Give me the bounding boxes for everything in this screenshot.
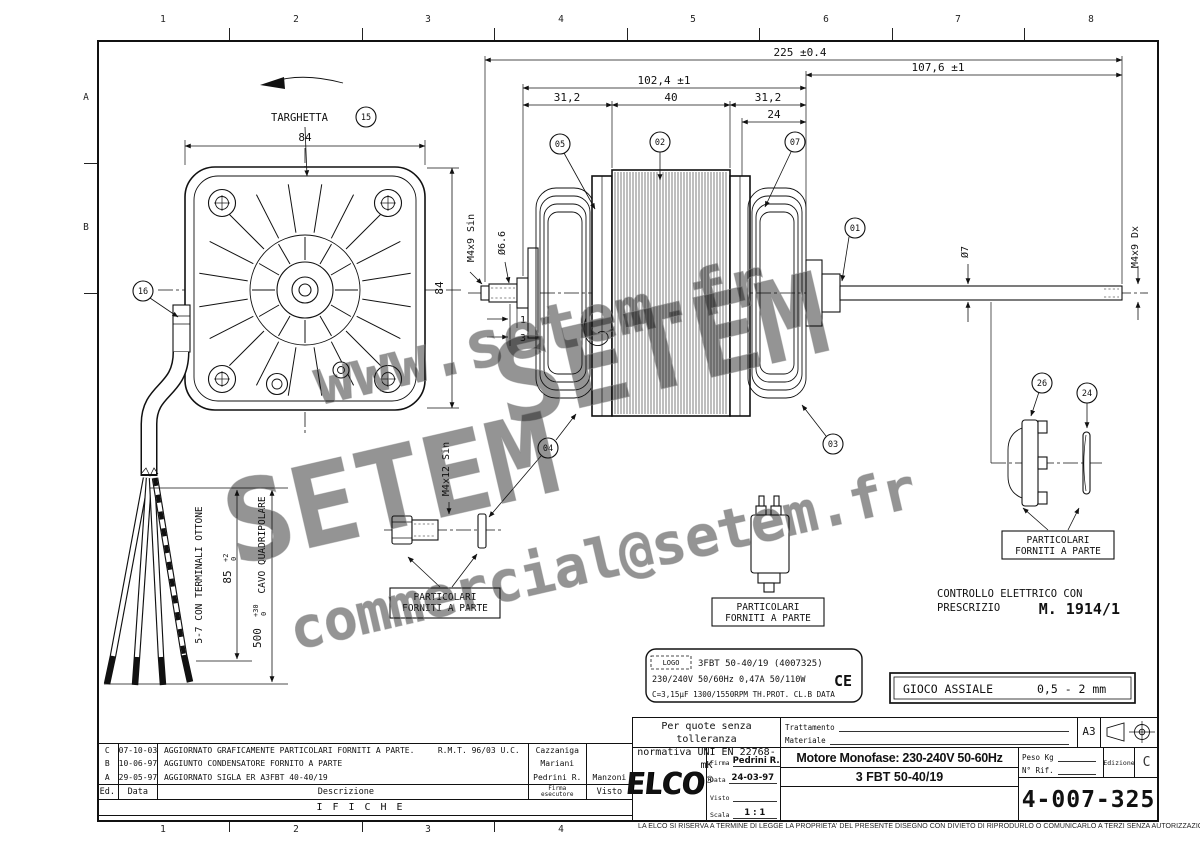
- ce-mark: CE: [834, 672, 852, 690]
- balloon-03: 03: [828, 440, 838, 450]
- dim-seg3: 31,2: [755, 91, 782, 104]
- dia-stub-label: Ø6.6: [496, 231, 508, 255]
- drawing-title: Motore Monofase: 230-240V 50-60Hz 3 FBT …: [781, 748, 1019, 821]
- revision-row: A 29-05-97 AGGIORNATO SIGLA ER A3FBT 40-…: [97, 771, 632, 784]
- balloon-16: 16: [138, 287, 148, 297]
- svg-text:0,5 - 2 mm: 0,5 - 2 mm: [1037, 682, 1106, 696]
- particolari-box-capacitor: PARTICOLARI FORNITI A PARTE: [712, 598, 824, 626]
- svg-text:PARTICOLARI: PARTICOLARI: [1027, 535, 1090, 546]
- sheet-format: A3: [1078, 718, 1101, 748]
- nameplate-logo: LOGO: [663, 659, 680, 667]
- rotation-arrow: [260, 77, 343, 89]
- svg-text:PRESCRIZIO: PRESCRIZIO: [937, 602, 1000, 614]
- note-terminals: 5-7 CON TERMINALI OTTONE: [194, 506, 205, 644]
- weight-fields: Peso Kg N° Rif.: [1019, 748, 1104, 778]
- dim-front-height: 84: [433, 281, 446, 295]
- nameplate-line1: 3FBT 50-40/19 (4007325): [698, 659, 823, 669]
- svg-text:+30: +30: [252, 604, 260, 617]
- svg-text:FORNITI A PARTE: FORNITI A PARTE: [1015, 546, 1101, 557]
- balloon-05: 05: [555, 140, 565, 150]
- balloon-07: 07: [790, 138, 800, 148]
- balloon-24: 24: [1082, 389, 1092, 399]
- svg-text:GIOCO ASSIALE: GIOCO ASSIALE: [903, 682, 993, 696]
- svg-text:+2: +2: [222, 554, 230, 562]
- dim-total: 225 ±0.4: [774, 46, 827, 59]
- balloon-01: 01: [850, 224, 860, 234]
- targhetta-label: TARGHETTA: [271, 112, 329, 124]
- dim-body: 102,4 ±1: [638, 74, 691, 87]
- balloon-15: 15: [361, 113, 371, 123]
- cable-assembly: [107, 305, 190, 685]
- nameplate-line3: C=3,15μF 1300/1550RPM TH.PROT. CL.B DATA: [652, 690, 835, 699]
- revision-header: Ed. Data Descrizione Firmaesecutore Vist…: [97, 784, 632, 799]
- dia-shaft-label: Ø7: [959, 246, 971, 258]
- dim-shaft-side: 107,6 ±1: [912, 61, 965, 74]
- drawing-sheet: 1 2 3 4 5 6 7 8 1 2 3 4 A B: [0, 0, 1200, 848]
- dim-seg1: 31,2: [554, 91, 581, 104]
- dim-seg2: 40: [664, 91, 677, 104]
- title-block: Per quote senza tolleranza normativa UNI…: [632, 717, 1157, 820]
- drawing-number: 4-007-325: [1019, 778, 1158, 821]
- balloon-26: 26: [1037, 379, 1047, 389]
- projection-symbol: [1101, 718, 1158, 748]
- signature-fields: FirmaPedrini R. Data24-03-97 Visto Scala…: [707, 748, 781, 821]
- material-fields: Trattamento Materiale: [781, 718, 1078, 748]
- svg-text:500: 500: [251, 628, 264, 648]
- controllo-note: CONTROLLO ELETTRICO CON PRESCRIZIO M. 19…: [937, 588, 1120, 618]
- legal-disclaimer: LA ELCO SI RISERVA A TERMINE DI LEGGE LA…: [638, 823, 1198, 830]
- dim-cable-length: 500 +30 0: [251, 604, 268, 648]
- revision-row: B 10-06-97 AGGIUNTO CONDENSATORE FORNITO…: [97, 757, 632, 770]
- hub-and-disc: [991, 302, 1105, 506]
- controllo-ref: M. 1914/1: [1039, 600, 1120, 618]
- balloon-02: 02: [655, 138, 665, 148]
- edition-field: Edizione C: [1104, 748, 1158, 778]
- revision-table: C 07-10-03 AGGIORNATO GRAFICAMENTE PARTI…: [97, 743, 632, 813]
- gioco-assiale-box: GIOCO ASSIALE 0,5 - 2 mm: [890, 673, 1135, 703]
- thread-right-label: M4x9 Dx: [1130, 226, 1141, 268]
- svg-text:CONTROLLO ELETTRICO CON: CONTROLLO ELETTRICO CON: [937, 588, 1082, 600]
- revision-footer: IFICHE: [97, 799, 632, 816]
- thread-left-label: M4x9 Sin: [466, 214, 477, 262]
- tolerance-note: Per quote senza tolleranza normativa UNI…: [633, 718, 781, 748]
- svg-text:PARTICOLARI: PARTICOLARI: [737, 602, 800, 613]
- svg-text:85: 85: [221, 570, 234, 583]
- revision-row: C 07-10-03 AGGIORNATO GRAFICAMENTE PARTI…: [97, 744, 632, 757]
- svg-text:FORNITI A PARTE: FORNITI A PARTE: [725, 613, 811, 624]
- company-logo: ELCO®: [633, 748, 707, 821]
- dim-24: 24: [767, 108, 781, 121]
- nameplate-line2: 230/240V 50/60Hz 0,47A 50/110W: [652, 675, 806, 685]
- nameplate: LOGO 3FBT 50-40/19 (4007325) 230/240V 50…: [646, 649, 862, 702]
- particolari-box-hub: PARTICOLARI FORNITI A PARTE: [1002, 508, 1114, 559]
- svg-text:0: 0: [260, 612, 268, 616]
